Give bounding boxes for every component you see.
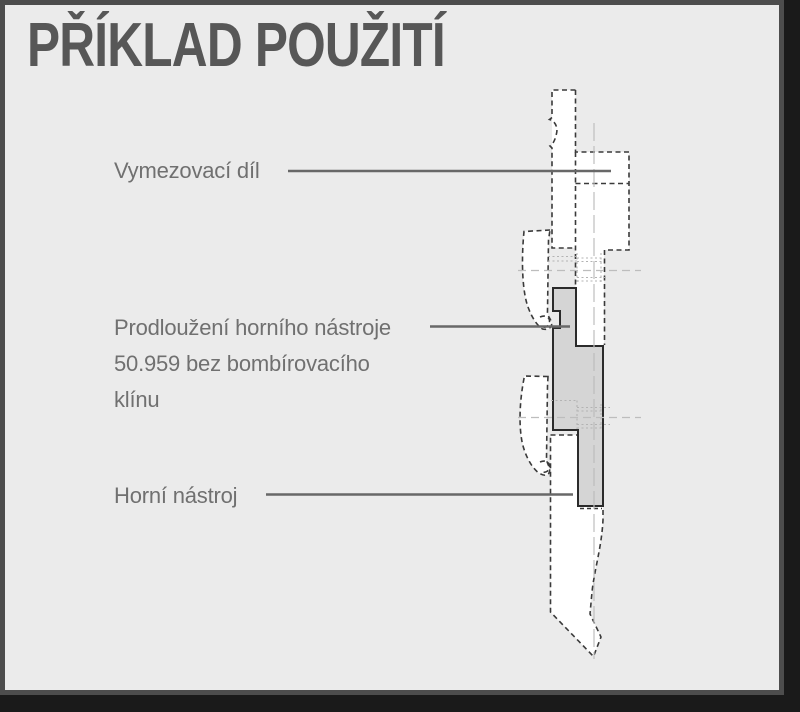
clamp-blob-lower: [520, 376, 550, 475]
clamp-blob-lower-outline: [520, 376, 550, 475]
clamp-blob-upper-outline: [522, 230, 551, 329]
catalog-card: PŘÍKLAD POUŽITÍ Vymezovací díl Prodlouže…: [0, 0, 784, 695]
technical-drawing: [5, 5, 779, 690]
clamp-blob-upper: [522, 230, 551, 329]
page: { "page": { "title": "PŘÍKLAD POUŽITÍ" }…: [0, 0, 800, 712]
